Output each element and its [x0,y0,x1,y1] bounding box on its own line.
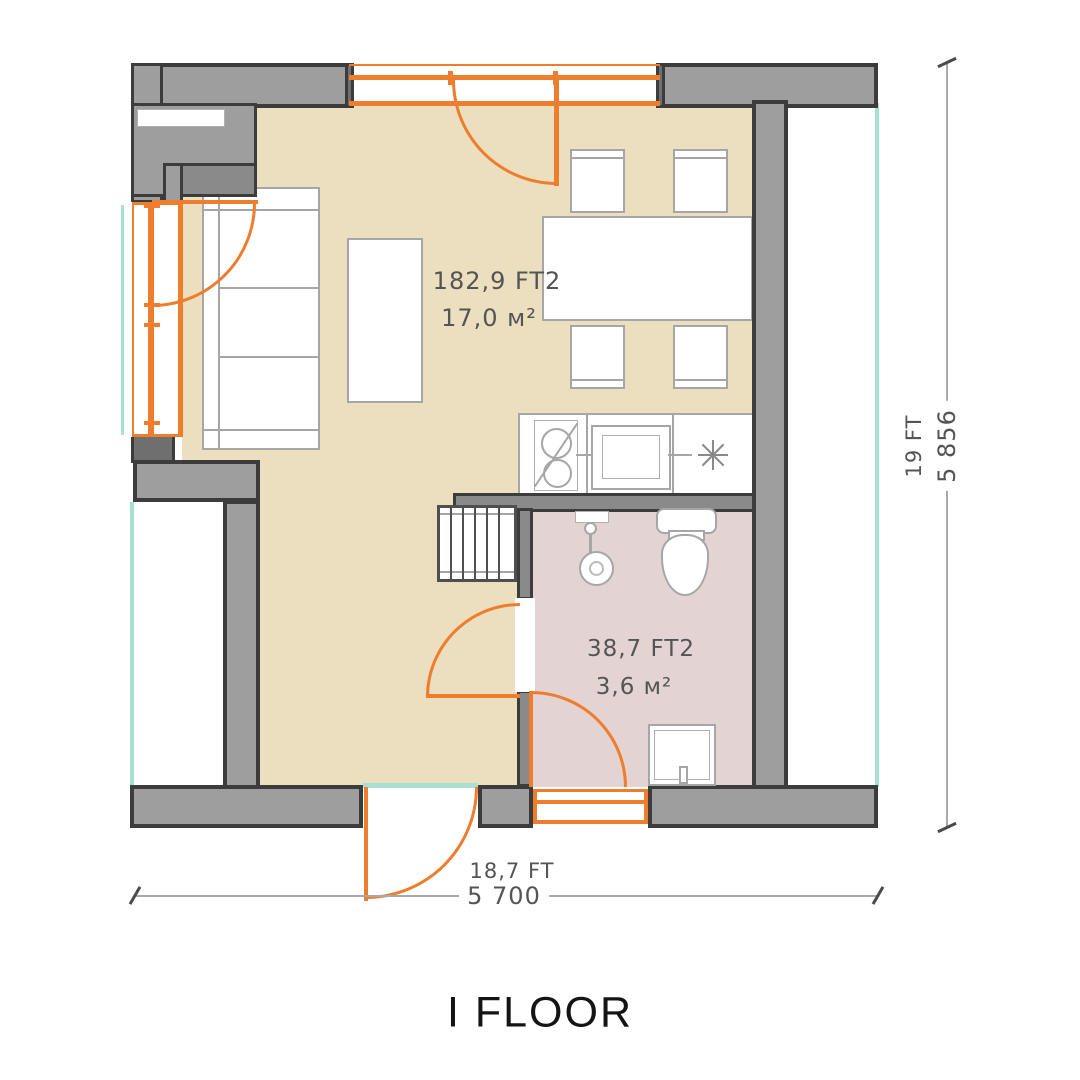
wall-bathroom-upper [517,508,533,600]
bath-exterior-door-frame [533,820,648,824]
washbasin-drain [589,561,604,576]
terrace-edge-left [130,502,134,787]
wall-top-left [131,63,353,108]
sofa-armrest-line [204,429,318,431]
stairs-step [474,508,476,579]
dimension-right-mm: 5 856 [933,401,961,491]
living-room-area-metric: 17,0 м² [441,304,537,332]
counter-centerline [576,454,592,456]
stairs-step [450,508,452,579]
bathroom-area-metric: 3,6 м² [596,674,672,700]
dimension-right-feet: 19 FT [902,415,926,478]
stairs-step [462,508,464,579]
chair-backrest-line [673,379,728,381]
dimension-bottom-feet: 18,7 FT [470,859,555,883]
page-title: I FLOOR [447,989,633,1038]
shower-drain [679,766,688,784]
wall-left-lower [223,500,260,789]
dining-table [542,216,753,321]
left-window-mullion [144,323,160,327]
counter-centerline [668,454,692,456]
bathroom-area-imperial: 38,7 FT2 [587,636,695,662]
sink-bowl-bottom [543,459,572,488]
sofa-cushion-line [220,287,318,289]
left-window-mullion [144,421,160,425]
wall-right [752,100,788,789]
bath-exterior-door-frame [644,789,648,824]
wall-bottom-right [648,785,878,828]
bath-exterior-door-frame [533,789,537,824]
coffee-table [347,238,423,403]
terrace-edge-right [875,103,879,787]
bath-exterior-door-frame [533,800,648,804]
chair-backrest-line [570,379,625,381]
floor-plan-page: 182,9 FT2 17,0 м² 38,7 FT2 3,6 м² 18,7 F… [0,0,1080,1080]
stairs-step [498,508,500,579]
dimension-bottom-mm: 5 700 [459,882,549,910]
wall-left-corner-block [131,433,175,463]
stove-inner [602,435,660,479]
niche-window-slot [137,109,225,127]
left-window-frame [132,434,183,437]
wall-bottom-left [130,785,363,828]
wall-left-jog [133,460,260,502]
wall-bottom-mid [478,785,533,828]
left-window-frame [132,202,134,437]
wall-left-mid [163,163,183,203]
top-window-frame [349,64,660,66]
sofa-cushion-line [220,356,318,358]
bath-exterior-door-frame [533,789,648,792]
living-room-area-imperial: 182,9 FT2 [433,267,562,295]
chair-backrest-line [673,157,728,159]
chair-backrest-line [570,157,625,159]
window-sill-left [121,205,124,435]
stairs-step [486,508,488,579]
